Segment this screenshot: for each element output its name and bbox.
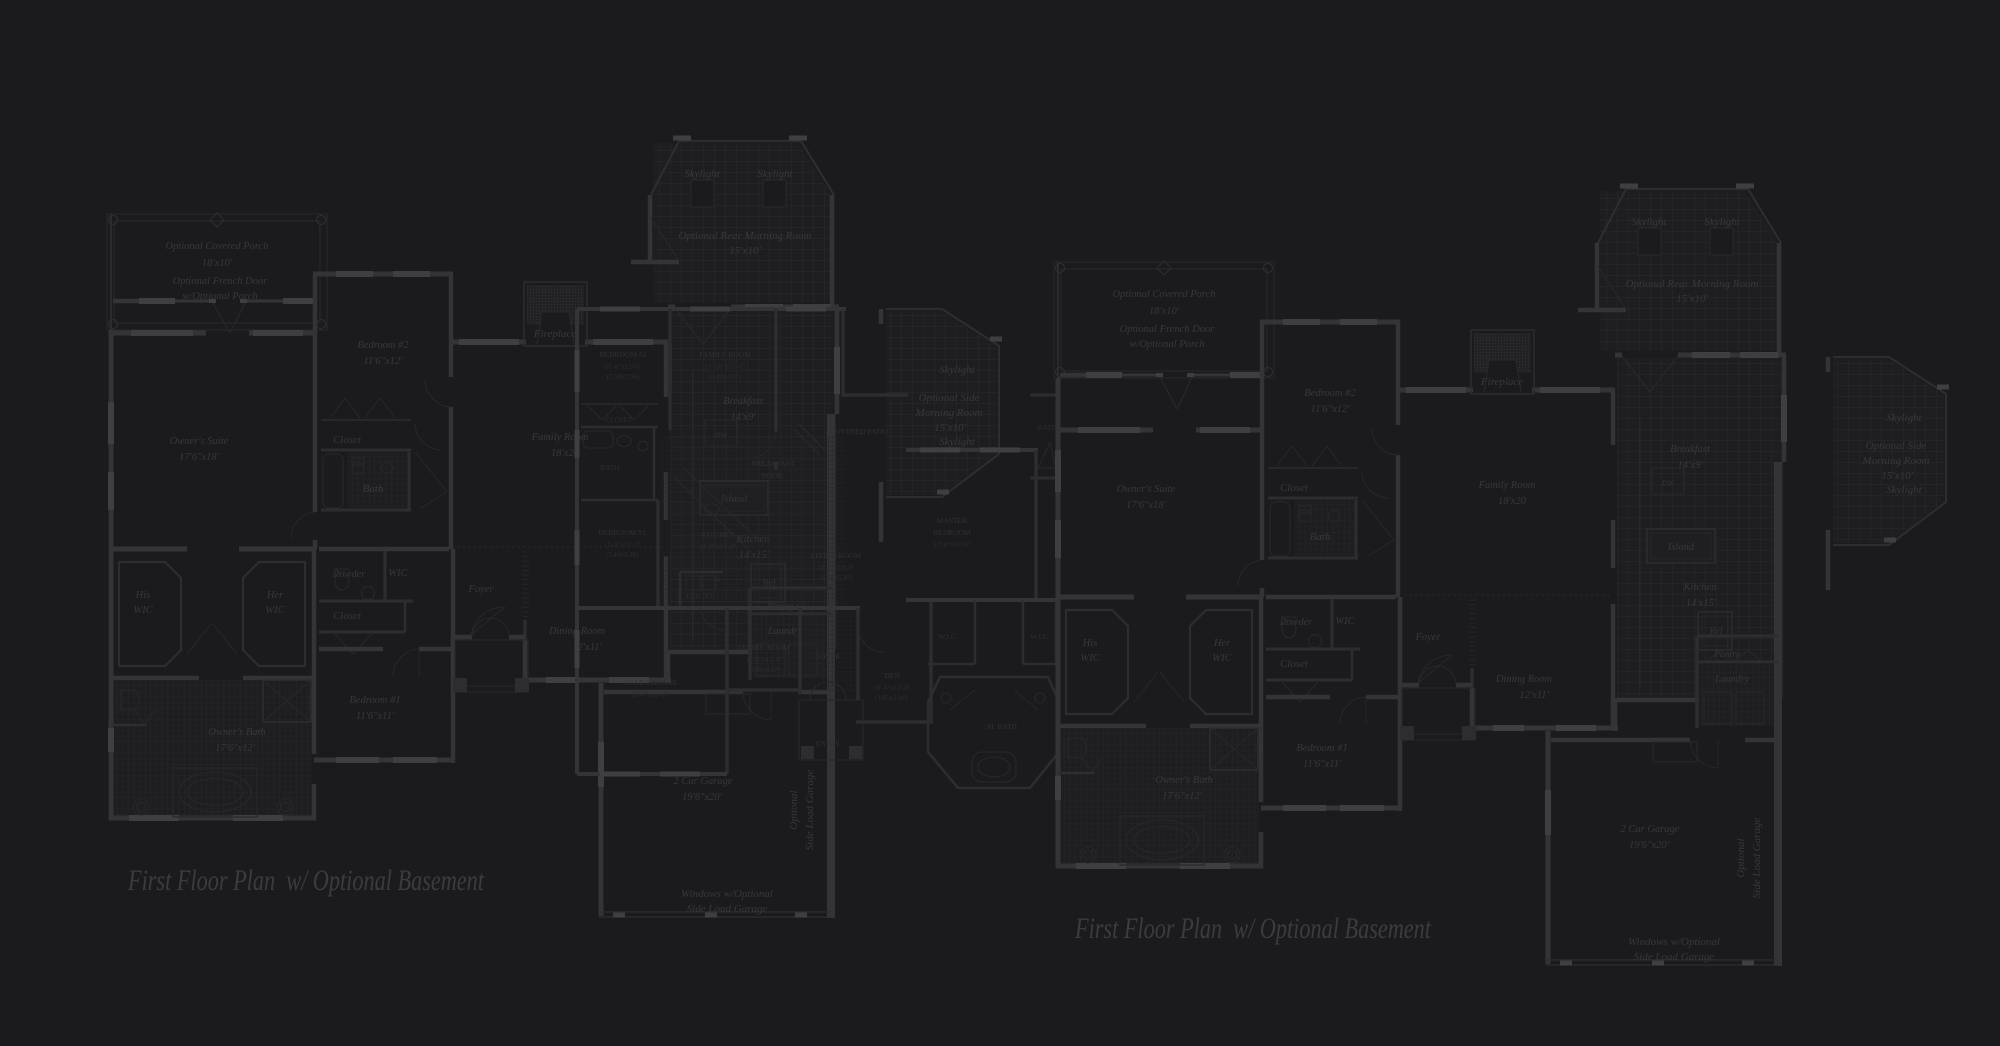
svg-text:Bedroom #1: Bedroom #1 — [1296, 743, 1347, 754]
svg-text:His: His — [135, 590, 151, 601]
svg-text:2 Car Garage: 2 Car Garage — [674, 776, 733, 787]
svg-text:17'-10"x15'-0": 17'-10"x15'-0" — [705, 363, 746, 371]
svg-text:Breakfast: Breakfast — [723, 396, 764, 407]
svg-text:11'6"x12': 11'6"x12' — [1310, 404, 1350, 415]
svg-text:BATH: BATH — [1037, 423, 1057, 432]
svg-text:Her: Her — [266, 590, 284, 601]
svg-text:Skylight: Skylight — [1886, 484, 1922, 496]
svg-text:Bedroom #2: Bedroom #2 — [357, 340, 409, 351]
svg-text:(4.06x5.49): (4.06x5.49) — [820, 574, 853, 582]
svg-text:15'x10': 15'x10' — [934, 422, 966, 434]
svg-text:11'-2"x11'-1": 11'-2"x11'-1" — [604, 541, 641, 549]
svg-text:Side Load Garage: Side Load Garage — [804, 770, 816, 851]
svg-text:11'-8"x13'-0": 11'-8"x13'-0" — [699, 543, 736, 551]
svg-text:19'6"x20': 19'6"x20' — [682, 792, 723, 803]
svg-text:Bath: Bath — [1310, 531, 1331, 543]
svg-text:18'x10': 18'x10' — [1149, 306, 1180, 317]
svg-text:W: W — [714, 577, 721, 584]
svg-text:FOYER: FOYER — [816, 652, 841, 661]
svg-text:Side Load Garage: Side Load Garage — [1634, 951, 1715, 963]
svg-text:Foyer: Foyer — [1414, 632, 1441, 643]
svg-text:His: His — [1082, 638, 1098, 649]
svg-text:3 CAR GARAGE: 3 CAR GARAGE — [623, 678, 678, 687]
svg-text:Windows w/Optional: Windows w/Optional — [1628, 936, 1720, 948]
svg-text:14'x9': 14'x9' — [731, 412, 757, 423]
svg-text:15'x10': 15'x10' — [729, 245, 761, 257]
svg-text:Bath: Bath — [363, 483, 384, 495]
svg-text:Island: Island — [1667, 542, 1695, 553]
svg-text:Owner's Suite: Owner's Suite — [170, 436, 229, 447]
svg-text:11'6"x11': 11'6"x11' — [1303, 759, 1342, 770]
svg-text:Family Room: Family Room — [1478, 480, 1536, 491]
svg-text:BATH: BATH — [600, 463, 620, 472]
svg-text:DINING ROOM: DINING ROOM — [738, 643, 789, 652]
svg-text:Optional Rear Morning Room: Optional Rear Morning Room — [1626, 278, 1759, 290]
svg-text:WIC: WIC — [1212, 653, 1232, 664]
svg-text:Bedroom #2: Bedroom #2 — [1304, 388, 1356, 399]
svg-text:NOOK: NOOK — [761, 471, 783, 480]
svg-text:Owner's Suite: Owner's Suite — [1117, 484, 1176, 495]
svg-text:Pantry: Pantry — [1713, 650, 1741, 660]
svg-text:Owner's Bath: Owner's Bath — [208, 727, 265, 738]
svg-text:17'6"x18': 17'6"x18' — [1126, 500, 1167, 511]
svg-text:12'x11': 12'x11' — [1519, 690, 1549, 701]
svg-text:Fireplace: Fireplace — [1480, 376, 1523, 388]
svg-text:LIVING ROOM: LIVING ROOM — [811, 551, 862, 560]
svg-text:14'x15': 14'x15' — [1686, 598, 1717, 609]
svg-text:Skylight: Skylight — [757, 168, 793, 180]
svg-text:Windows w/Optional: Windows w/Optional — [681, 888, 773, 900]
svg-text:Optional French Door: Optional French Door — [1120, 324, 1216, 335]
svg-text:Laundry: Laundry — [1714, 674, 1749, 685]
svg-text:Kitchen: Kitchen — [1683, 582, 1717, 593]
svg-text:Fireplace: Fireplace — [533, 328, 576, 340]
svg-text:Closet: Closet — [333, 610, 362, 622]
svg-text:Side Load Garage: Side Load Garage — [1751, 818, 1763, 899]
svg-text:(3.05x3.66): (3.05x3.66) — [875, 694, 908, 702]
svg-text:Skylight: Skylight — [1886, 412, 1922, 424]
svg-text:WIC: WIC — [265, 605, 285, 616]
svg-text:Breakfast: Breakfast — [1670, 444, 1711, 455]
svg-text:BEDROOM #2: BEDROOM #2 — [600, 350, 647, 359]
svg-text:(3.35x4.17): (3.35x4.17) — [748, 666, 781, 674]
svg-text:Closet: Closet — [1280, 482, 1309, 494]
svg-text:First Floor Plan w/ Optional: First Floor Plan w/ Optional Basement — [127, 864, 484, 897]
svg-text:BREAKFAST: BREAKFAST — [751, 459, 795, 468]
svg-text:Closet: Closet — [1280, 658, 1309, 670]
svg-text:Optional French Door: Optional French Door — [173, 276, 269, 287]
svg-text:17'6"x12': 17'6"x12' — [1162, 791, 1203, 802]
svg-text:ENTRY: ENTRY — [816, 739, 841, 748]
svg-text:BEDROOM #3: BEDROOM #3 — [599, 528, 646, 537]
svg-text:BEDROOM: BEDROOM — [933, 528, 971, 537]
svg-text:Morning Room: Morning Room — [1862, 455, 1930, 467]
svg-text:Optional Rear Morning Room: Optional Rear Morning Room — [679, 230, 812, 242]
svg-text:w/Optional Porch: w/Optional Porch — [1129, 339, 1204, 350]
svg-text:Optional: Optional — [788, 790, 800, 829]
svg-text:Dining Room: Dining Room — [1495, 674, 1553, 685]
svg-text:2 Car Garage: 2 Car Garage — [1621, 824, 1680, 835]
svg-text:Foyer: Foyer — [467, 584, 494, 595]
svg-text:(3.40x3.38): (3.40x3.38) — [606, 551, 639, 559]
svg-text:(5.44x4.57): (5.44x4.57) — [709, 373, 742, 381]
svg-text:Skylight: Skylight — [1631, 216, 1667, 228]
svg-text:Side Load Garage: Side Load Garage — [687, 903, 768, 915]
svg-text:UTILITY: UTILITY — [686, 592, 714, 600]
svg-text:DEN: DEN — [884, 671, 900, 680]
svg-text:Morning Room: Morning Room — [915, 407, 983, 419]
svg-text:Optional Side: Optional Side — [1866, 440, 1927, 452]
svg-text:14'x9': 14'x9' — [1678, 460, 1704, 471]
svg-text:19'6"x20': 19'6"x20' — [1629, 840, 1670, 851]
svg-text:WIC: WIC — [133, 605, 153, 616]
svg-text:First Floor Plan w/ Optional: First Floor Plan w/ Optional Basement — [1074, 912, 1431, 945]
svg-text:11'-6"x13'-0": 11'-6"x13'-0" — [604, 363, 641, 371]
svg-text:15'x10': 15'x10' — [1881, 470, 1913, 482]
svg-text:Optional Covered Porch: Optional Covered Porch — [1112, 289, 1215, 300]
svg-text:17'6"x12': 17'6"x12' — [215, 743, 256, 754]
svg-text:18'x10': 18'x10' — [202, 258, 233, 269]
svg-text:COVERED PATIO: COVERED PATIO — [830, 427, 888, 436]
svg-text:MASTER: MASTER — [937, 516, 967, 525]
svg-text:Her: Her — [1213, 638, 1231, 649]
svg-text:Closet: Closet — [333, 434, 362, 446]
svg-text:WIC: WIC — [1080, 653, 1100, 664]
svg-text:17'6"x18': 17'6"x18' — [179, 452, 220, 463]
svg-text:CLOSET: CLOSET — [606, 416, 633, 424]
svg-text:Optional Covered Porch: Optional Covered Porch — [165, 241, 268, 252]
svg-text:Skylight: Skylight — [939, 436, 975, 448]
svg-text:Bedroom #1: Bedroom #1 — [349, 695, 400, 706]
svg-text:15'x10': 15'x10' — [1676, 293, 1708, 305]
svg-text:13'-0"x16'-0": 13'-0"x16'-0" — [933, 541, 971, 549]
svg-text:(3.50x3.96): (3.50x3.96) — [607, 373, 640, 381]
svg-text:Skylight: Skylight — [684, 168, 720, 180]
svg-text:M. BATH: M. BATH — [987, 722, 1018, 731]
svg-text:DW: DW — [1661, 479, 1676, 488]
svg-text:20'-8"x30'-0": 20'-8"x30'-0" — [631, 691, 669, 699]
svg-text:WIC: WIC — [388, 568, 408, 579]
svg-text:11'6"x12': 11'6"x12' — [363, 356, 403, 367]
svg-text:11'6"x11': 11'6"x11' — [356, 711, 395, 722]
svg-text:Family Room: Family Room — [531, 432, 589, 443]
svg-text:11'-0"x13'-8": 11'-0"x13'-8" — [745, 656, 782, 664]
svg-text:FAMILY ROOM: FAMILY ROOM — [699, 350, 751, 359]
svg-text:18'x20: 18'x20 — [1498, 496, 1527, 507]
svg-text:10'-0"x12'-0": 10'-0"x12'-0" — [873, 684, 911, 692]
svg-text:Owner's Bath: Owner's Bath — [1155, 775, 1212, 786]
svg-text:W.I.C.: W.I.C. — [938, 632, 958, 641]
svg-text:Optional: Optional — [1735, 838, 1747, 877]
svg-text:Skylight: Skylight — [939, 364, 975, 376]
svg-text:Skylight: Skylight — [1704, 216, 1740, 228]
svg-text:13'-4"x18'-0": 13'-4"x18'-0" — [817, 564, 855, 572]
svg-text:W.I.C.: W.I.C. — [1030, 632, 1050, 641]
svg-text:WIC: WIC — [1335, 616, 1355, 627]
svg-text:Optional Side: Optional Side — [919, 392, 980, 404]
svg-text:Laundry: Laundry — [767, 626, 802, 637]
